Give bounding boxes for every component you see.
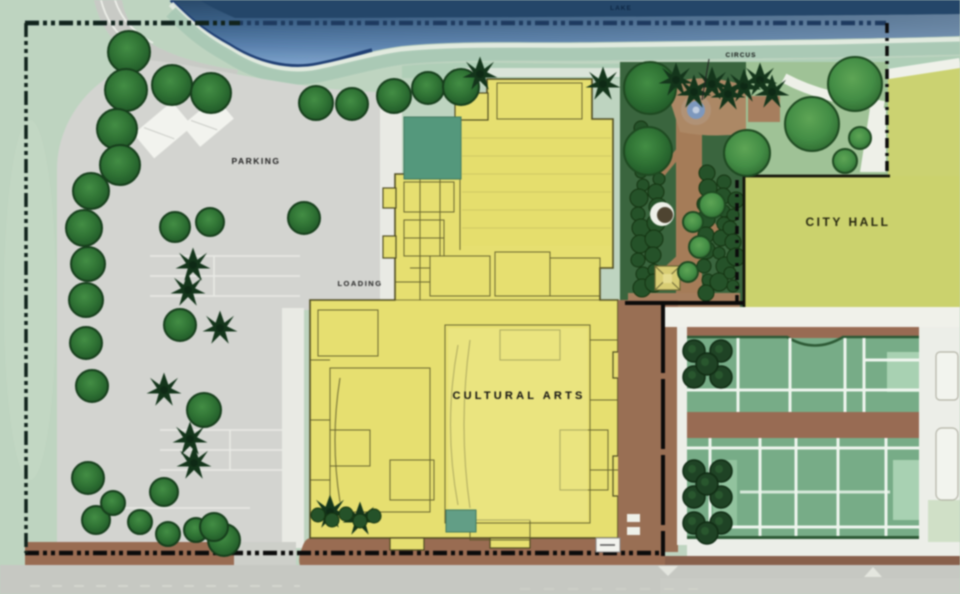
svg-text:LOADING: LOADING: [337, 279, 382, 288]
svg-text:CITY HALL: CITY HALL: [806, 215, 891, 229]
svg-text:CULTURAL ARTS: CULTURAL ARTS: [452, 390, 585, 402]
svg-text:CIRCUS: CIRCUS: [726, 52, 757, 59]
svg-text:LAKE: LAKE: [610, 5, 632, 12]
svg-text:PARKING: PARKING: [231, 156, 280, 166]
